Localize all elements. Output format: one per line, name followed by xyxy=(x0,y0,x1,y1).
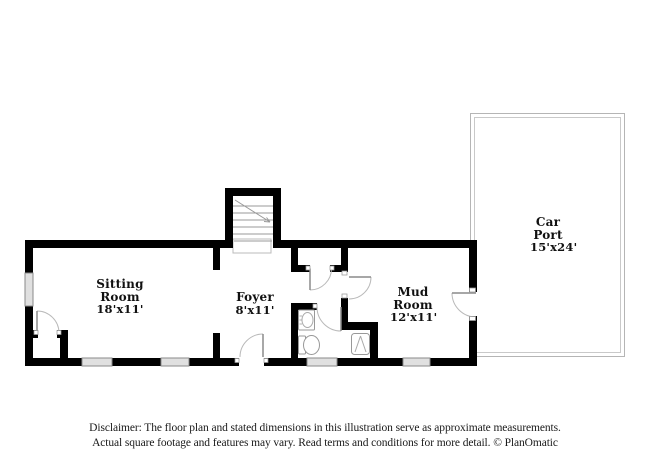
window-icon xyxy=(307,358,337,366)
room-label-foyer: Foyer 8'x11' xyxy=(225,291,285,316)
room-name: Mud Room xyxy=(390,286,436,311)
room-label-mud-room: Mud Room 12'x11' xyxy=(390,286,436,324)
room-dimensions: 8'x11' xyxy=(225,304,285,317)
room-dimensions: 12'x11' xyxy=(390,311,436,324)
room-dimensions: 18'x11' xyxy=(91,303,149,316)
door-arc-icon xyxy=(349,277,371,299)
bathroom-fixtures xyxy=(299,310,320,355)
floor-plan: Sitting Room 18'x11' Foyer 8'x11' Mud Ro… xyxy=(0,0,650,473)
window-icon xyxy=(82,358,112,366)
window-icon xyxy=(25,273,33,306)
disclaimer-line-2: Actual square footage and features may v… xyxy=(0,436,650,451)
sink-icon xyxy=(299,310,315,330)
window-icon xyxy=(161,358,189,366)
door-arc-icon xyxy=(240,334,263,357)
door-arc-icon xyxy=(310,269,332,291)
room-name: Sitting Room xyxy=(91,278,149,303)
room-label-sitting-room: Sitting Room 18'x11' xyxy=(91,278,149,316)
toilet-icon xyxy=(299,336,320,355)
door-arc-icon xyxy=(317,307,341,331)
room-label-car-port: Car Port 15'x24' xyxy=(530,216,566,254)
room-name: Car Port xyxy=(530,216,566,241)
stairs-icon xyxy=(233,200,273,253)
disclaimer: Disclaimer: The floor plan and stated di… xyxy=(0,421,650,451)
door-arc-icon xyxy=(37,311,59,333)
room-name: Foyer xyxy=(225,291,285,304)
walls xyxy=(25,188,477,366)
disclaimer-line-1: Disclaimer: The floor plan and stated di… xyxy=(0,421,650,436)
window-icon xyxy=(403,358,430,366)
room-dimensions: 15'x24' xyxy=(530,241,566,254)
water-heater-icon xyxy=(352,334,370,355)
